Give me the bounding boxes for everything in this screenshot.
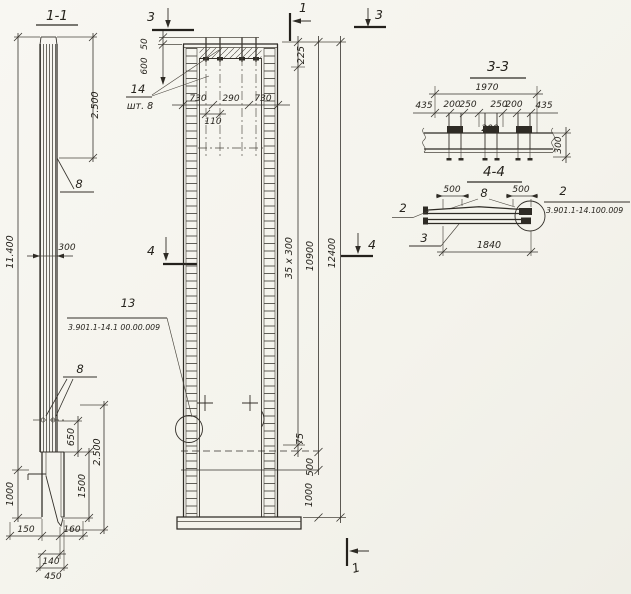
dim-1500: 1500 (77, 474, 88, 498)
label-pos8: 8 (480, 186, 487, 200)
pile-tip (46, 476, 63, 526)
label-pos2-left: 2 (399, 201, 406, 215)
wall-left-rungs (186, 48, 197, 517)
pile-top-taper-right (56, 37, 57, 45)
cut-mark-1-bottom: 1 (350, 559, 362, 576)
leader-rebar-bottom (56, 379, 73, 416)
plate-end (423, 218, 428, 225)
leader-pos14 (152, 76, 209, 96)
drawing-sheet: 1-1 11.400 1000 2.500 (0, 0, 631, 594)
dim-500: 500 (305, 458, 316, 476)
arrowhead (349, 548, 358, 553)
plate-end (521, 218, 531, 224)
dim-500-left: 500 (443, 185, 460, 195)
leader-rebar-top (57, 158, 74, 189)
arrowhead (33, 254, 40, 259)
dim-200-l: 200 (443, 100, 460, 110)
cut-mark-3-top-left: 3 (147, 9, 155, 24)
wall-right-rungs (264, 48, 275, 517)
dim-300: 300 (554, 136, 564, 153)
cut-mark-4-left: 4 (147, 243, 155, 258)
dim-150: 150 (17, 525, 34, 535)
pile-hatch (41, 44, 57, 452)
label-pos14-qty: шт. 8 (127, 101, 153, 112)
dim-140: 140 (42, 557, 59, 567)
label-pos2-doc: 3.901.1-14.100.009 (546, 206, 623, 215)
dim-10900: 10900 (305, 241, 316, 271)
dim-110: 110 (204, 117, 221, 127)
dim-bottom-2500: 2.500 (92, 438, 103, 465)
label-pos13-doc: 3.901.1-14.1 00.00.009 (68, 323, 160, 332)
dim-435-r: 435 (535, 101, 552, 111)
label-pos3: 3 (420, 231, 427, 245)
dim-450: 450 (44, 572, 61, 582)
arrowhead (165, 20, 171, 28)
dim-500-right: 500 (512, 185, 529, 195)
dim-1970: 1970 (476, 83, 499, 93)
arrowhead (437, 194, 444, 198)
drawing-canvas: 1-1 11.400 1000 2.500 (0, 0, 631, 594)
dim-435-l: 435 (415, 101, 432, 111)
dim-1000: 1000 (5, 482, 16, 506)
dim-730-right: 730 (254, 94, 271, 104)
centring-crosses (197, 395, 258, 411)
dim-50: 50 (140, 38, 150, 50)
bolt-clusters (447, 113, 533, 161)
dim-650: 650 (66, 428, 77, 446)
arrowhead (531, 194, 538, 198)
leader-pos14 (152, 50, 219, 95)
leader-pos3 (441, 224, 459, 246)
detail-circle (515, 201, 545, 231)
arrowhead (462, 194, 469, 198)
dim-top-2500: 2.500 (90, 91, 101, 118)
arrowhead (365, 19, 371, 27)
pile-top-taper-left (40, 37, 41, 45)
cut-mark-4-right: 4 (368, 237, 376, 252)
section-1-1-title: 1-1 (46, 8, 68, 24)
dim-730-left: 730 (189, 94, 206, 104)
dim-290: 290 (222, 94, 239, 104)
base-plate (177, 517, 301, 529)
dim-1840: 1840 (477, 240, 501, 251)
top-plate-upper (428, 207, 531, 210)
section-3-3-view: 3-3 1970 435 200 250 250 200 435 200 (413, 59, 571, 163)
section-3-3-title: 3-3 (487, 59, 509, 75)
label-pos13: 13 (121, 296, 136, 310)
dim-600: 600 (140, 57, 150, 74)
label-pos14: 14 (131, 82, 146, 96)
arrowhead (292, 18, 301, 23)
label-rebar-top: 8 (75, 177, 82, 191)
section-4-4-view: 4-4 8 500 500 2 3 (392, 164, 630, 256)
leader-pos8 (489, 199, 515, 207)
arrowhead (57, 254, 64, 259)
dim-75: 75 (295, 433, 306, 445)
cut-mark-3-top-right: 3 (375, 7, 383, 22)
dim-1000: 1000 (304, 483, 315, 507)
dim-160: 160 (63, 525, 80, 535)
arrowhead (160, 77, 165, 85)
dim-total-height: 11.400 (5, 235, 16, 268)
arrowhead (355, 246, 361, 254)
elevation-view: 3 1 3 4 4 1 (67, 0, 386, 576)
dim-width-300: 300 (58, 243, 75, 253)
plate-end (519, 208, 532, 215)
dim-225: 225 (296, 46, 307, 64)
label-pos2-right: 2 (559, 184, 566, 198)
dim-12400: 12400 (327, 238, 338, 268)
label-rebar-bottom: 8 (76, 362, 83, 376)
section-1-1-view: 1-1 11.400 1000 2.500 (5, 8, 108, 582)
cut-mark-1-top: 1 (299, 0, 307, 15)
section-4-4-title: 4-4 (483, 164, 505, 180)
dim-200-r: 200 (505, 100, 522, 110)
dim-35x300: 35 x 300 (284, 237, 295, 279)
dim-250-l: 250 (459, 100, 476, 110)
arrowhead (163, 253, 169, 261)
